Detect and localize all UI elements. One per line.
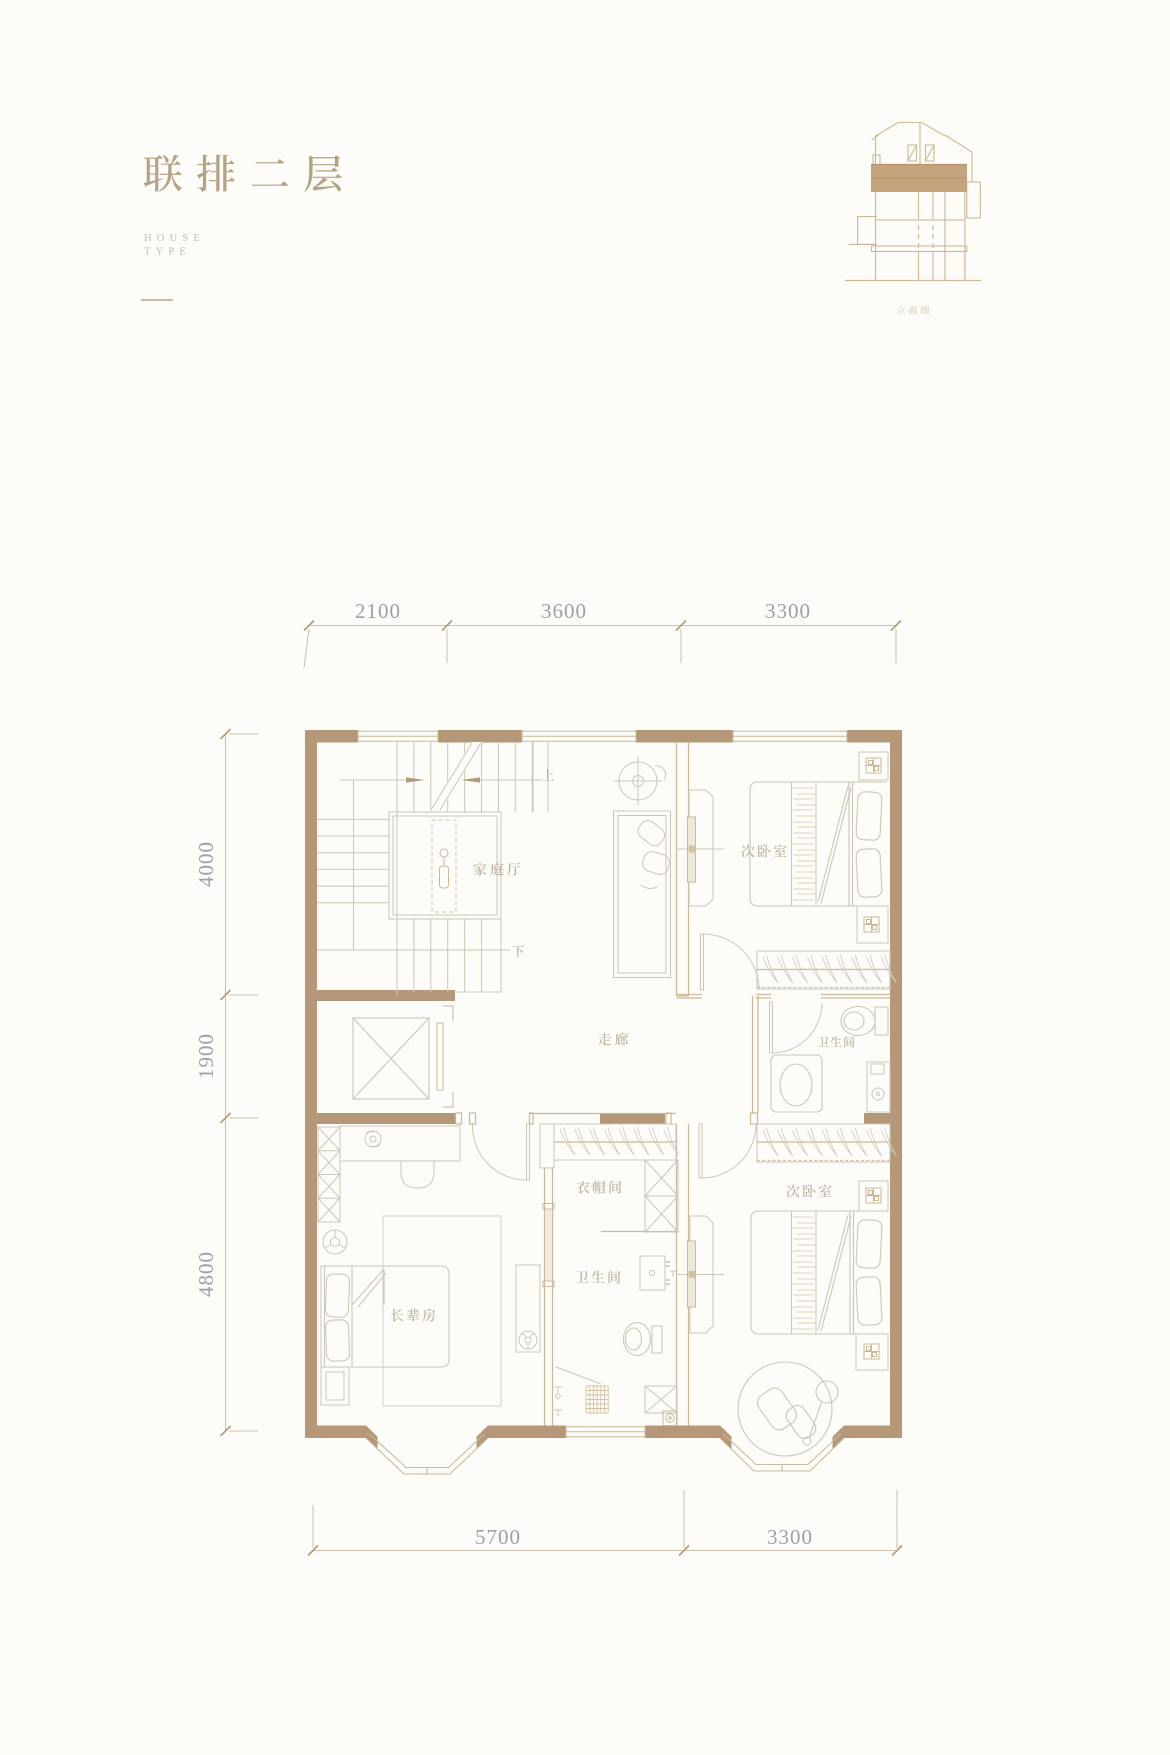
svg-text:3600: 3600 [541, 599, 587, 623]
svg-text:5700: 5700 [475, 1525, 521, 1549]
svg-text:4000: 4000 [194, 841, 218, 887]
svg-text:1900: 1900 [194, 1033, 218, 1079]
svg-text:3300: 3300 [767, 1525, 813, 1549]
svg-text:3300: 3300 [765, 599, 811, 623]
svg-text:2100: 2100 [355, 599, 401, 623]
svg-text:HOUSE: HOUSE [144, 233, 205, 244]
svg-text:4800: 4800 [194, 1251, 218, 1297]
svg-text:TYPE: TYPE [144, 247, 191, 258]
